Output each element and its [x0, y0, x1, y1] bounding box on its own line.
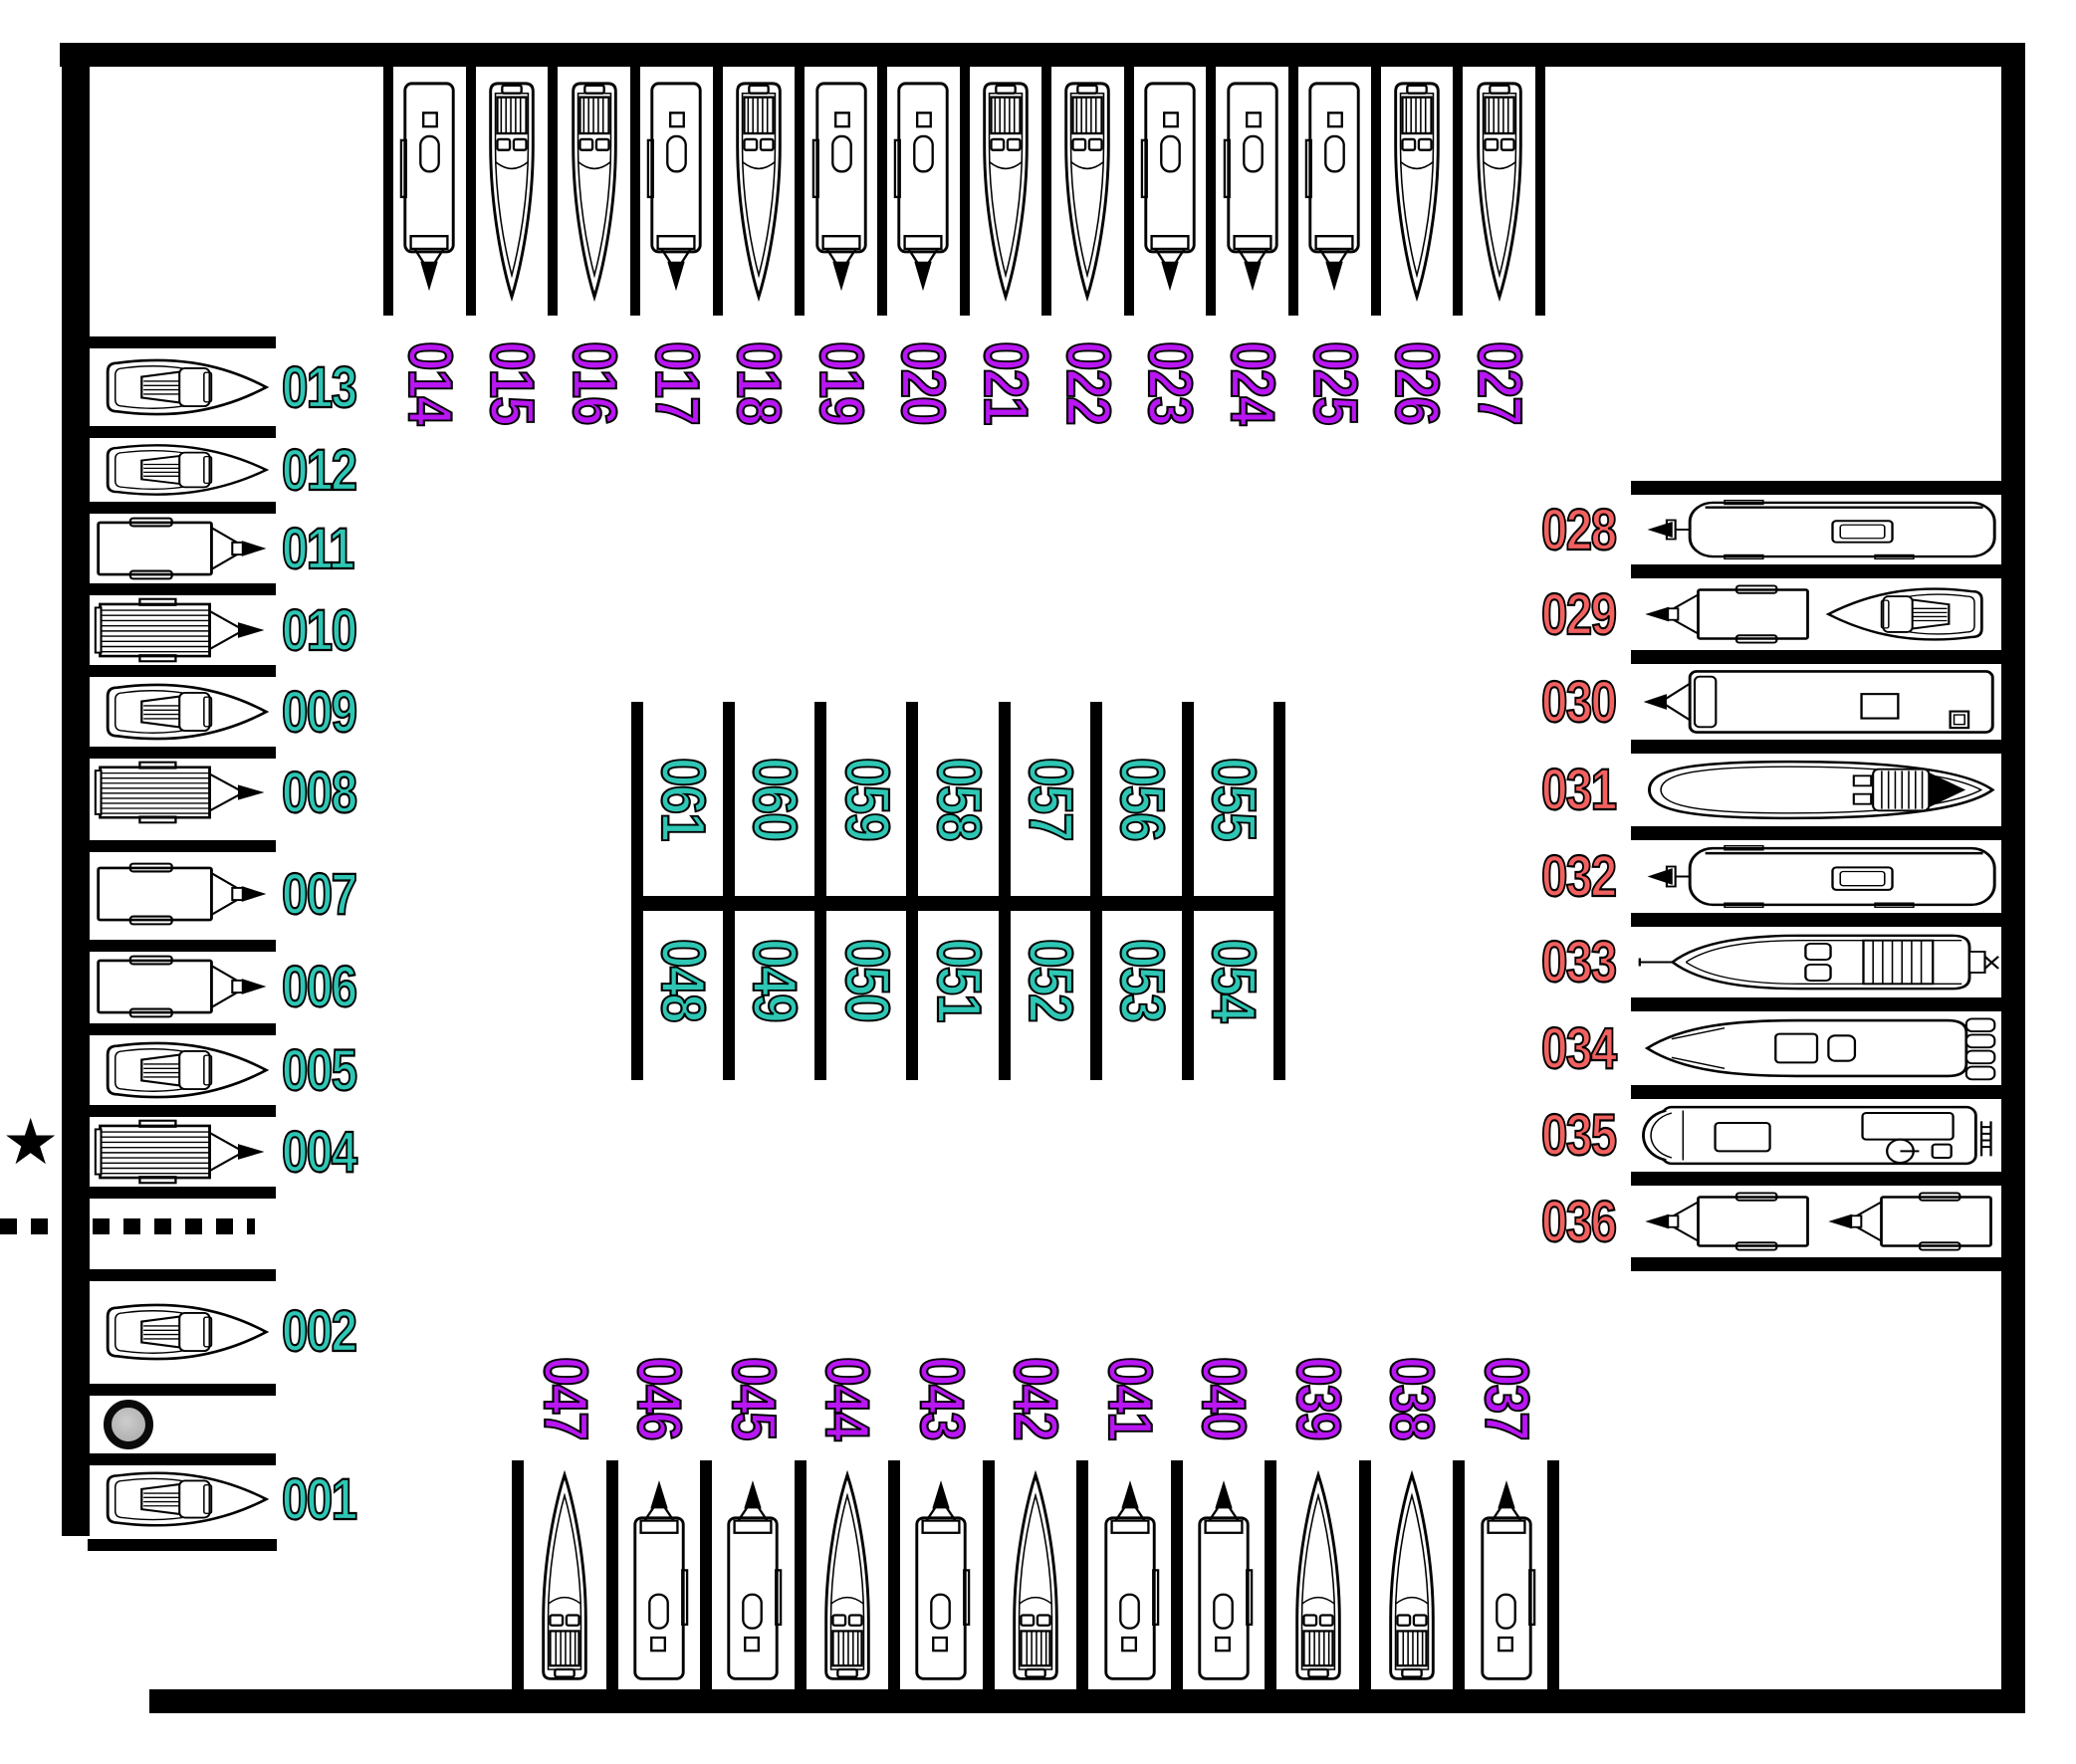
slot-022[interactable] [1051, 70, 1124, 313]
motorboat-icon [93, 1467, 274, 1531]
slot-divider [700, 1460, 712, 1689]
slot-divider [1041, 67, 1051, 316]
slot-divider [960, 67, 970, 316]
slot-label: 016 [563, 321, 626, 444]
slot-039[interactable] [1276, 1465, 1359, 1686]
slot-divider [1076, 1460, 1088, 1689]
slot-label: 043 [909, 1336, 973, 1459]
slot-044[interactable] [807, 1465, 889, 1686]
slot-027[interactable] [1463, 70, 1535, 313]
slot-label: 012 [282, 442, 381, 498]
slot-label: 060 [743, 737, 807, 860]
slot-019[interactable] [805, 70, 877, 313]
cargo-trailer-icon [628, 1467, 690, 1684]
cargo-trailer-icon [910, 1467, 972, 1684]
utility-trailer-icon [93, 516, 274, 581]
speedboat-icon [1005, 1467, 1066, 1684]
slot-label: 027 [1468, 321, 1531, 444]
slot-label: 051 [927, 918, 991, 1041]
slot-divider [1547, 1460, 1559, 1689]
slot-divider [1631, 564, 2003, 578]
slot-divider [999, 702, 1011, 896]
slot-label: 047 [533, 1336, 596, 1459]
slot-040[interactable] [1183, 1465, 1266, 1686]
slot-divider [1535, 67, 1545, 316]
slot-label: 020 [891, 321, 955, 444]
slot-025[interactable] [1298, 70, 1371, 313]
slot-label: 036 [1541, 1194, 1641, 1249]
slot-001[interactable] [92, 1465, 274, 1533]
slot-label: 050 [834, 918, 898, 1041]
motorboat-icon [1821, 583, 1996, 645]
slot-label: 035 [1541, 1108, 1641, 1164]
camper-trailer-icon [1634, 844, 2000, 909]
slot-label: 049 [743, 918, 807, 1041]
slot-divider [1171, 1460, 1183, 1689]
slot-label: 005 [282, 1042, 381, 1098]
slot-013[interactable] [92, 348, 274, 426]
slot-divider [466, 67, 476, 316]
speedboat-icon [564, 78, 625, 305]
covered-boat-icon [93, 597, 274, 663]
slot-label: 034 [1541, 1020, 1641, 1076]
slot-033[interactable] [1633, 927, 2001, 997]
slot-divider [906, 702, 918, 896]
slot-011[interactable] [92, 514, 274, 583]
slot-label: 028 [1541, 502, 1641, 557]
wall-left-end-cap [88, 1539, 277, 1551]
slot-034[interactable] [1633, 1011, 2001, 1085]
slot-divider [90, 1105, 276, 1117]
slot-label: 056 [1110, 737, 1174, 860]
slot-label: 024 [1221, 321, 1284, 444]
motorboat-icon [93, 354, 274, 420]
slot-label: 033 [1541, 935, 1641, 991]
speedboat-icon [1386, 78, 1448, 305]
slot-divider [983, 1460, 995, 1689]
slot-label: 040 [1192, 1336, 1256, 1459]
slot-divider [795, 1460, 807, 1689]
slot-divider [90, 665, 276, 677]
slot-divider [1371, 67, 1381, 316]
wall-top [60, 43, 2025, 67]
slot-037[interactable] [1465, 1465, 1547, 1686]
slot-008[interactable] [92, 759, 274, 826]
slot-divider [1265, 1460, 1276, 1689]
speedboat-icon [1056, 78, 1118, 305]
slot-label: 013 [282, 359, 381, 415]
slot-divider [713, 67, 723, 316]
slot-divider [1631, 650, 2003, 664]
wall-right [2001, 50, 2025, 1710]
slot-004[interactable] [92, 1117, 274, 1187]
utility-trailer-icon [1821, 1191, 1996, 1252]
slot-label: 008 [282, 765, 381, 820]
slot-divider [90, 1187, 276, 1199]
slot-label: 054 [1202, 918, 1266, 1041]
wall-bottom [149, 1689, 2025, 1713]
slot-divider [1453, 67, 1463, 316]
slot-divider [90, 747, 276, 759]
slot-label: 021 [974, 321, 1038, 444]
slot-divider [90, 336, 276, 348]
slot-label: 017 [644, 321, 708, 444]
slot-label: 006 [282, 959, 381, 1014]
slot-016[interactable] [558, 70, 630, 313]
rv-camper-icon [1634, 1103, 2000, 1168]
slot-divider [1288, 67, 1298, 316]
slot-divider [90, 840, 276, 852]
cargo-trailer-icon [645, 78, 707, 305]
slot-014[interactable] [393, 70, 466, 313]
slot-label: 018 [727, 321, 791, 444]
slot-divider [1631, 740, 2003, 754]
speedboat-icon [534, 1467, 595, 1684]
yacht-icon [1634, 758, 2000, 822]
console-boat-icon [1634, 1015, 2000, 1081]
slot-label: 055 [1202, 737, 1266, 860]
cargo-trailer-icon [1193, 1467, 1255, 1684]
slot-label: 038 [1380, 1336, 1444, 1459]
slot-divider [90, 1453, 276, 1465]
wall-left [62, 43, 90, 1536]
slot-divider [1631, 1172, 2003, 1186]
slot-006[interactable] [92, 952, 274, 1021]
slot-026[interactable] [1381, 70, 1454, 313]
slot-label: 009 [282, 684, 381, 740]
motorboat-icon [93, 1037, 274, 1103]
cargo-trailer-icon [892, 78, 954, 305]
slot-035[interactable] [1633, 1099, 2001, 1172]
slot-label: 059 [834, 737, 898, 860]
slot-divider [1273, 702, 1285, 896]
slot-divider [888, 1460, 900, 1689]
slot-divider [1090, 702, 1102, 896]
slot-divider [1206, 67, 1216, 316]
slot-005[interactable] [92, 1035, 274, 1105]
slot-label: 001 [282, 1471, 381, 1527]
slot-divider [1631, 1257, 2003, 1271]
cargo-trailer-icon [1476, 1467, 1537, 1684]
pontoon-boat-icon [1634, 668, 2000, 736]
star-marker: ★ [2, 1111, 59, 1175]
dashed-boundary-line [0, 1218, 255, 1234]
slot-036[interactable] [1633, 1186, 2001, 1257]
speedboat-icon [816, 1467, 878, 1684]
boat-storage-facility-map: 014 015 016 017 018 019 020 021 022 023 … [0, 0, 2076, 1764]
speedboat-icon [1381, 1467, 1443, 1684]
slot-046[interactable] [618, 1465, 701, 1686]
slot-divider [1631, 481, 2003, 495]
slot-divider [906, 911, 918, 1080]
slot-042[interactable] [995, 1465, 1077, 1686]
slot-divider [1631, 826, 2003, 840]
slot-label: 044 [815, 1336, 879, 1459]
slot-divider [723, 911, 735, 1080]
slot-021[interactable] [970, 70, 1042, 313]
slot-label: 032 [1541, 849, 1641, 905]
slot-label: 061 [651, 737, 715, 860]
slot-023[interactable] [1134, 70, 1207, 313]
slot-divider [548, 67, 558, 316]
speedboat-icon [481, 78, 543, 305]
slot-divider [90, 426, 276, 438]
slot-divider [90, 1023, 276, 1035]
slot-label: 007 [282, 866, 381, 922]
slot-divider [630, 67, 640, 316]
slot-label: 025 [1302, 321, 1366, 444]
slot-label: 004 [282, 1124, 381, 1180]
utility-trailer-icon [93, 954, 274, 1019]
slot-012[interactable] [92, 438, 274, 502]
slot-divider [877, 67, 887, 316]
slot-038[interactable] [1371, 1465, 1454, 1686]
slot-label: 052 [1019, 918, 1082, 1041]
cargo-trailer-icon [398, 78, 460, 305]
speedboat-on-trailer-icon [1634, 931, 2000, 993]
slot-divider [814, 702, 826, 896]
slot-002[interactable] [92, 1281, 274, 1382]
slot-label: 042 [1004, 1336, 1067, 1459]
utility-trailer-icon [1638, 583, 1813, 645]
slot-divider [1631, 913, 2003, 927]
slot-label: 045 [721, 1336, 785, 1459]
utility-trailer-icon [93, 861, 274, 927]
slot-divider [90, 583, 276, 595]
cargo-trailer-icon [810, 78, 872, 305]
slot-label: 011 [282, 521, 381, 576]
slot-047[interactable] [524, 1465, 606, 1686]
cargo-trailer-icon [1099, 1467, 1161, 1684]
slot-028[interactable] [1633, 495, 2001, 564]
slot-divider [1182, 702, 1194, 896]
covered-boat-icon [93, 1119, 274, 1185]
slot-010[interactable] [92, 595, 274, 665]
slot-007[interactable] [92, 852, 274, 936]
covered-boat-icon [93, 761, 274, 824]
slot-divider [1273, 911, 1285, 1080]
slot-041[interactable] [1088, 1465, 1171, 1686]
slot-divider [1631, 997, 2003, 1011]
cargo-trailer-icon [722, 1467, 784, 1684]
slot-divider [723, 702, 735, 896]
slot-032[interactable] [1633, 840, 2001, 913]
slot-divider [606, 1460, 618, 1689]
slot-label: 058 [927, 737, 991, 860]
slot-label: 019 [809, 321, 873, 444]
utility-trailer-icon [1638, 1191, 1813, 1252]
slot-018[interactable] [723, 70, 796, 313]
slot-divider [814, 911, 826, 1080]
circle-marker [104, 1400, 153, 1449]
speedboat-icon [1287, 1467, 1349, 1684]
motorboat-icon [93, 679, 274, 745]
slot-divider [1124, 67, 1134, 316]
slot-020[interactable] [887, 70, 960, 313]
slot-029[interactable] [1633, 578, 2001, 650]
slot-label: 053 [1110, 918, 1174, 1041]
slot-label: 022 [1055, 321, 1119, 444]
slot-divider [795, 67, 805, 316]
slot-label: 057 [1019, 737, 1082, 860]
slot-divider [1359, 1460, 1371, 1689]
slot-divider [90, 502, 276, 514]
slot-divider [631, 702, 643, 896]
slot-label: 014 [397, 321, 461, 444]
slot-label: 041 [1098, 1336, 1162, 1459]
slot-divider [631, 911, 643, 1080]
slot-label: 039 [1286, 1336, 1350, 1459]
slot-043[interactable] [900, 1465, 983, 1686]
slot-divider [1453, 1460, 1465, 1689]
motorboat-icon [93, 440, 274, 500]
slot-divider [1090, 911, 1102, 1080]
slot-009[interactable] [92, 677, 274, 747]
cargo-trailer-icon [1303, 78, 1365, 305]
slot-label: 015 [480, 321, 544, 444]
slot-divider [90, 1269, 276, 1281]
slot-divider [90, 940, 276, 952]
slot-divider [1182, 911, 1194, 1080]
slot-label: 037 [1475, 1336, 1538, 1459]
slot-label: 031 [1541, 763, 1641, 818]
slot-031[interactable] [1633, 754, 2001, 826]
slot-label: 010 [282, 602, 381, 658]
slot-024[interactable] [1216, 70, 1288, 313]
slot-045[interactable] [712, 1465, 795, 1686]
speedboat-icon [728, 78, 790, 305]
camper-trailer-icon [1634, 499, 2000, 560]
slot-divider [512, 1460, 524, 1689]
slot-label: 023 [1138, 321, 1202, 444]
speedboat-icon [975, 78, 1037, 305]
slot-030[interactable] [1633, 664, 2001, 740]
motorboat-icon [93, 1299, 274, 1365]
slot-label: 030 [1541, 674, 1641, 730]
slot-015[interactable] [476, 70, 549, 313]
slot-label: 029 [1541, 586, 1641, 642]
slot-label: 046 [627, 1336, 691, 1459]
slot-divider [999, 911, 1011, 1080]
slot-divider [383, 67, 393, 316]
slot-label: 002 [282, 1304, 381, 1360]
cargo-trailer-icon [1222, 78, 1283, 305]
speedboat-icon [1469, 78, 1530, 305]
cargo-trailer-icon [1139, 78, 1201, 305]
slot-divider [1631, 1085, 2003, 1099]
slot-017[interactable] [640, 70, 713, 313]
slot-divider [90, 1384, 276, 1396]
center-block-middle-bar [631, 896, 1285, 911]
slot-label: 048 [651, 918, 715, 1041]
slot-label: 026 [1385, 321, 1449, 444]
